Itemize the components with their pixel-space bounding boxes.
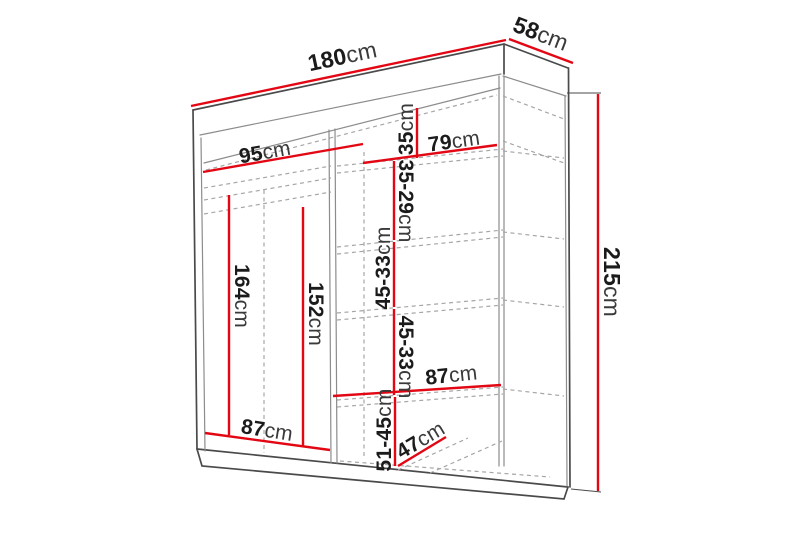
dim-unit: cm [372, 226, 395, 254]
dim-value: 87 [424, 364, 450, 389]
dim-label-middle-shelf-spacing-2: 45-33cm [394, 315, 417, 398]
shelf2-front [337, 230, 503, 247]
dim-label-upper-shelf-spacing: 35-29cm [394, 159, 417, 242]
dim-unit: cm [448, 361, 479, 387]
dim-unit: cm [263, 419, 295, 446]
dim-value: 180 [305, 43, 349, 77]
ceiling-receding-edge [503, 96, 564, 119]
dim-unit: cm [394, 370, 417, 398]
dim-label-left-rail-height: 152cm [304, 282, 327, 346]
dim-value: 164 [230, 264, 253, 300]
shelf3-side [503, 300, 564, 307]
dim-value: 35 [395, 131, 418, 155]
dim-label-bottom-shelf-spacing: 51-45cm [373, 388, 396, 471]
left-hanging-rail [204, 192, 331, 214]
dim-unit: cm [599, 286, 625, 317]
dim-value: 87 [239, 415, 266, 441]
diagram-canvas: 180cm 58cm 215cm 95cm 79cm 35cm 35-29cm … [0, 0, 800, 533]
dim-unit: cm [261, 137, 293, 165]
dim-label-left-section-width: 95cm [237, 137, 292, 169]
shelf2-side [503, 232, 564, 239]
dim-unit: cm [373, 388, 396, 416]
dim-label-middle-shelf-spacing-1: 45-33cm [372, 226, 395, 309]
shelf2-back [337, 237, 503, 254]
shelf3-front [337, 298, 503, 313]
height-extension-bottom [571, 489, 601, 492]
top-panel-inner-right-edge [503, 76, 566, 96]
left-outer-edge [193, 110, 197, 449]
dim-value: 79 [427, 130, 454, 156]
right-inner-wall [565, 96, 567, 486]
dim-unit: cm [394, 214, 417, 242]
divider-front-edge-a [329, 130, 331, 463]
dim-unit: cm [395, 103, 418, 131]
shelf1-back [337, 156, 503, 173]
wardrobe-dimension-diagram: 180cm 58cm 215cm 95cm 79cm 35cm 35-29cm … [0, 0, 800, 533]
shelf3-back [337, 305, 503, 320]
dim-label-shelf-depth: 47cm [392, 417, 449, 464]
dim-value: 35-29 [394, 159, 417, 214]
right-outer-edge [569, 68, 571, 487]
top-edges [193, 44, 568, 110]
dim-value: 45-33 [372, 255, 395, 310]
dim-label-shelf-width: 87cm [424, 361, 478, 389]
dim-value: 152 [304, 282, 327, 318]
divider-front-edge-b [335, 129, 337, 463]
shelf4-back [337, 394, 503, 407]
left-inner-wall [201, 138, 205, 451]
dim-unit: cm [304, 318, 327, 346]
dim-label-top-shelf-spacing: 35cm [395, 103, 418, 155]
dim-value: 45-33 [394, 315, 417, 370]
shelf4-side [503, 389, 564, 396]
dim-label-width: 180cm [305, 36, 379, 76]
extension-lines [567, 93, 601, 492]
dim-label-height: 215cm [599, 247, 625, 317]
dim-value: 215 [599, 247, 625, 286]
dim-unit: cm [344, 36, 380, 68]
dim-label-left-hanging-height: 164cm [230, 264, 253, 328]
left-top-shelf-back [204, 178, 331, 200]
shelf1-front [337, 149, 503, 166]
dim-unit: cm [230, 300, 253, 328]
dim-label-bottom-left-width: 87cm [239, 415, 294, 446]
dim-unit: cm [450, 127, 481, 154]
